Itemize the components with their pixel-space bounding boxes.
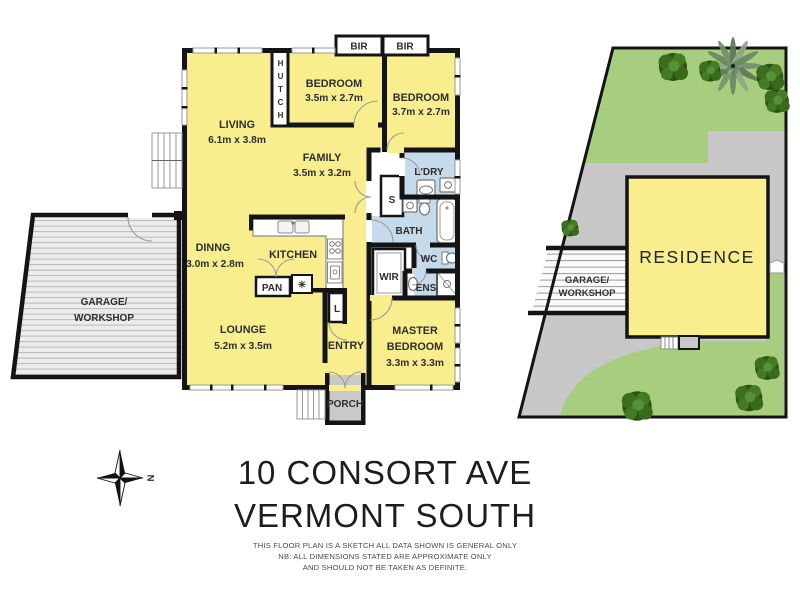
label-entry: ENTRY: [328, 340, 365, 352]
compass-icon: N: [97, 450, 156, 506]
hall-nook: [371, 176, 381, 216]
tree-icon: [755, 356, 780, 380]
label-linen: L: [334, 304, 340, 315]
tree-icon: [699, 61, 721, 82]
tree-icon: [561, 220, 579, 237]
garage-label-1: GARAGE/: [81, 297, 128, 308]
label-living: LIVING: [219, 119, 255, 131]
disclaimer-line-2: NB: ALL DIMENSIONS STATED ARE APPROXIMAT…: [278, 552, 491, 561]
tree-icon: [659, 53, 689, 81]
label-porch: PORCH: [327, 399, 363, 410]
label-store: S: [389, 195, 396, 206]
label-wir: WIR: [379, 272, 399, 283]
label-bir-2: BIR: [396, 42, 414, 53]
label-lounge-dims: 5.2m x 3.5m: [214, 341, 272, 352]
disclaimer-line-1: THIS FLOOR PLAN IS A SKETCH ALL DATA SHO…: [253, 541, 517, 550]
label-ensuite: ENS: [416, 283, 437, 294]
disclaimer-line-3: AND SHOULD NOT BE TAKEN AS DEFINITE.: [303, 563, 468, 572]
site-gate: [770, 260, 784, 273]
label-hutch-c: C: [278, 98, 284, 107]
label-hutch-h2: H: [278, 111, 284, 120]
label-master-2: BEDROOM: [387, 341, 443, 353]
label-living-dims: 6.1m x 3.8m: [208, 135, 266, 146]
address-title: 10 CONSORT AVE VERMONT SOUTH: [234, 454, 536, 534]
label-hutch-h1: H: [278, 59, 284, 68]
label-bedroom1: BEDROOM: [306, 78, 362, 90]
tree-icon: [735, 385, 763, 412]
label-family: FAMILY: [303, 152, 342, 164]
label-laundry: L'DRY: [414, 167, 444, 178]
disclaimer: THIS FLOOR PLAN IS A SKETCH ALL DATA SHO…: [253, 541, 517, 572]
tree-icon: [756, 64, 784, 91]
site-steps: [661, 336, 699, 349]
tree-icon: [622, 391, 653, 420]
bath-basin-icon: [403, 199, 417, 212]
porch-steps: [297, 390, 325, 419]
label-bath: BATH: [395, 226, 422, 237]
floorplan-page: GARAGE/ WORKSHOP RESIDENCE: [0, 0, 800, 603]
room-porch: [329, 375, 361, 421]
tree-icon: [765, 89, 790, 113]
label-lounge: LOUNGE: [220, 324, 266, 336]
site-garage-label-2: WORKSHOP: [559, 288, 617, 299]
garage-workshop: GARAGE/ WORKSHOP: [13, 211, 188, 377]
label-kitchen: KITCHEN: [269, 249, 317, 261]
label-bedroom1-dims: 3.5m x 2.7m: [305, 93, 363, 104]
label-pantry: PAN: [262, 283, 282, 294]
hall-nook: [371, 150, 402, 176]
stairs: [152, 133, 182, 188]
label-hutch-t: T: [278, 85, 283, 94]
label-dining-dims: 3.0m x 2.8m: [186, 259, 244, 270]
label-hutch-u: U: [278, 72, 284, 81]
laundry-basin-icon: [440, 178, 456, 192]
floorplan-canvas: GARAGE/ WORKSHOP RESIDENCE: [0, 0, 800, 603]
compass-north-label: N: [145, 475, 156, 482]
garage-label-2: WORKSHOP: [74, 313, 134, 324]
label-master-dims: 3.3m x 3.3m: [386, 358, 444, 369]
label-wc: WC: [421, 254, 438, 265]
label-dining: DINNG: [196, 242, 231, 254]
label-bedroom2-dims: 3.7m x 2.7m: [392, 107, 450, 118]
site-residence-label: RESIDENCE: [639, 247, 755, 267]
label-family-dims: 3.5m x 3.2m: [293, 168, 351, 179]
floor-plan: GARAGE/ WORKSHOP: [13, 36, 461, 425]
label-bedroom2: BEDROOM: [393, 92, 449, 104]
title-line-2: VERMONT SOUTH: [234, 497, 536, 534]
label-bir-1: BIR: [350, 42, 368, 53]
title-line-1: 10 CONSORT AVE: [238, 454, 533, 491]
dishwasher-icon: ✳: [298, 280, 307, 291]
label-master-1: MASTER: [392, 325, 438, 337]
site-garage-label-1: GARAGE/: [565, 275, 610, 286]
site-plan: GARAGE/ WORKSHOP RESIDENCE: [519, 37, 790, 421]
